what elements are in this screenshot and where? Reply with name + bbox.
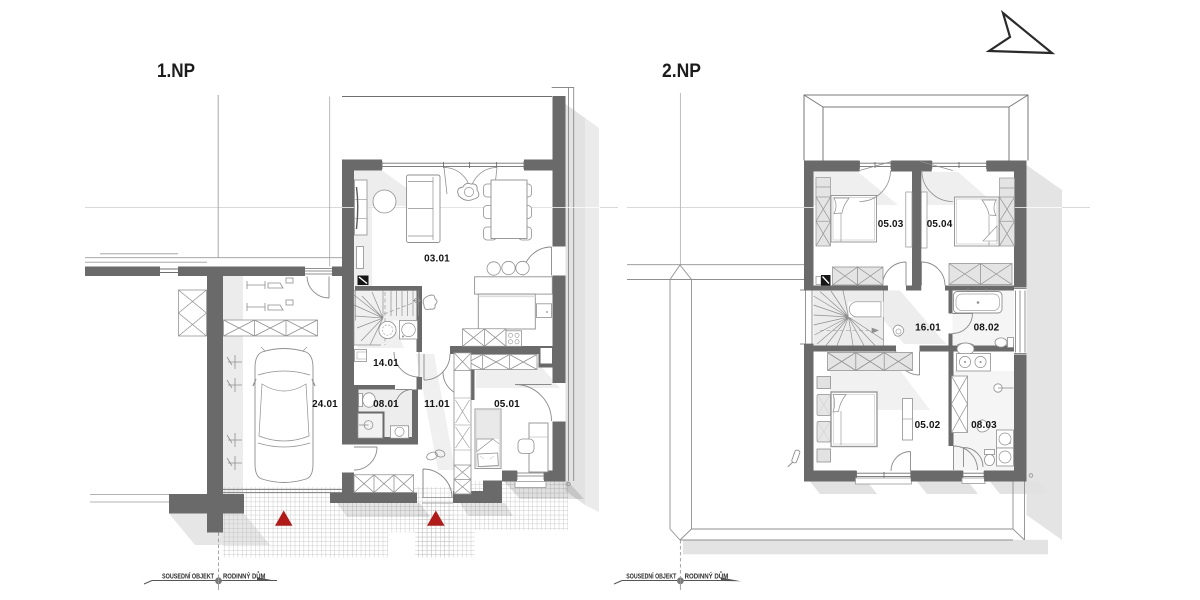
svg-text:05.01: 05.01 — [494, 398, 520, 410]
svg-text:RODINNÝ DŮM: RODINNÝ DŮM — [685, 571, 729, 581]
svg-text:RODINNÝ DŮM: RODINNÝ DŮM — [223, 571, 266, 581]
svg-text:SOUSEDNÍ OBJEKT: SOUSEDNÍ OBJEKT — [162, 572, 214, 581]
svg-text:24.01: 24.01 — [312, 398, 338, 410]
svg-text:14.01: 14.01 — [373, 357, 399, 369]
svg-text:16.01: 16.01 — [915, 322, 941, 334]
svg-text:08.01: 08.01 — [373, 398, 399, 410]
svg-text:05.02: 05.02 — [915, 419, 941, 431]
svg-text:1.NP: 1.NP — [157, 61, 195, 82]
svg-text:08.03: 08.03 — [971, 419, 997, 431]
svg-text:08.02: 08.02 — [974, 322, 1000, 334]
svg-text:03.01: 03.01 — [424, 253, 450, 265]
svg-text:11.01: 11.01 — [424, 398, 450, 410]
svg-text:05.04: 05.04 — [927, 218, 953, 230]
svg-text:2.NP: 2.NP — [662, 61, 701, 82]
svg-text:SOUSEDNÍ OBJEKT: SOUSEDNÍ OBJEKT — [626, 572, 676, 581]
svg-text:05.03: 05.03 — [878, 218, 904, 230]
